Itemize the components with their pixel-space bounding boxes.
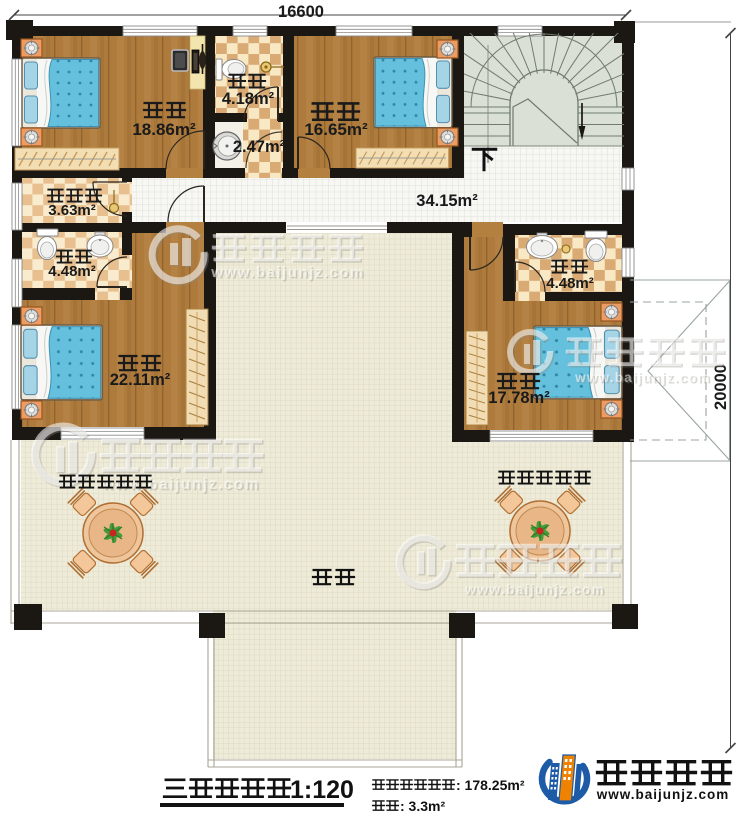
svg-text:4.18m²: 4.18m²	[222, 90, 275, 108]
svg-text:: 3.3m²: : 3.3m²	[400, 798, 445, 814]
svg-text:4.48m²: 4.48m²	[48, 263, 96, 280]
svg-text:20000: 20000	[712, 364, 730, 410]
svg-text:16.65m²: 16.65m²	[304, 120, 368, 139]
svg-text:1:120: 1:120	[290, 776, 354, 804]
svg-text:18.86m²: 18.86m²	[132, 120, 196, 139]
svg-text:3.63m²: 3.63m²	[48, 202, 96, 219]
svg-text:2.47m²: 2.47m²	[233, 138, 286, 156]
svg-text:www.baijunjz.com: www.baijunjz.com	[596, 787, 730, 802]
svg-text:34.15m²: 34.15m²	[416, 192, 478, 210]
svg-text:16600: 16600	[278, 3, 324, 21]
svg-text:22.11m²: 22.11m²	[110, 371, 171, 389]
svg-text:17.78m²: 17.78m²	[488, 389, 550, 407]
svg-text:: 178.25m²: : 178.25m²	[456, 777, 525, 793]
svg-text:4.48m²: 4.48m²	[546, 275, 594, 292]
